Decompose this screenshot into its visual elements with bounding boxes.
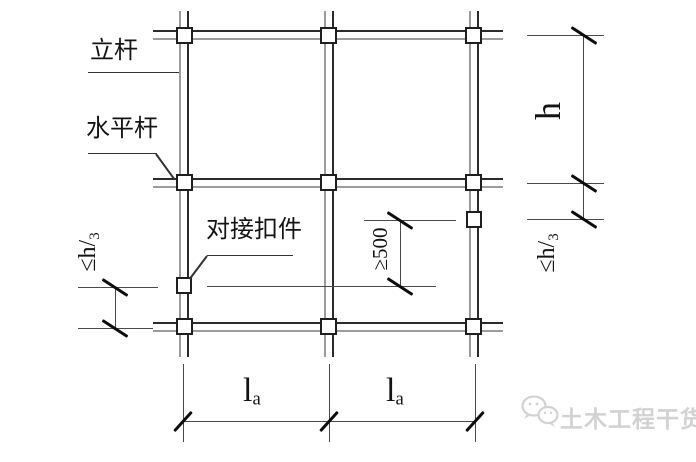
- ge500-value: ≥500: [370, 227, 391, 270]
- dim-text-h: h: [526, 89, 570, 133]
- butt-coupler-right: [466, 211, 482, 228]
- dim-text-ge500: ≥500: [369, 219, 391, 279]
- scaffold-butt-joint-diagram: h ≤h/3 ≤h/3 ≥500 la la 立杆 水平杆 对接扣件: [0, 0, 696, 462]
- leader-line-butt-coupler: [207, 255, 293, 256]
- extension-line: [475, 364, 476, 442]
- extension-line: [527, 183, 604, 184]
- dimension-line-ge500: [400, 220, 401, 286]
- dimension-line-leq-h3-left: [115, 287, 116, 328]
- dimension-line-h: [583, 35, 584, 219]
- dim-text-leq-h3-left: ≤h/3: [77, 220, 103, 284]
- extension-line: [183, 364, 184, 442]
- leader-elbow-butt-coupler: [189, 255, 208, 279]
- label-butt-coupler: 对接扣件: [206, 218, 302, 242]
- dim-text-la-1: la: [243, 374, 261, 409]
- joint-square: [176, 27, 193, 44]
- leader-elbow-horizontal-bar: [155, 153, 175, 179]
- label-vertical-pole: 立杆: [90, 39, 138, 63]
- joint-square: [176, 318, 193, 335]
- watermark-text: 土木工程干货集: [560, 400, 696, 434]
- leq-main: ≤h/3: [535, 233, 562, 272]
- joint-square: [176, 174, 193, 191]
- label-horizontal-bar: 水平杆: [86, 117, 158, 141]
- wechat-bubbles-icon: [519, 394, 561, 430]
- leader-line-vertical-pole: [88, 72, 179, 73]
- joint-square: [465, 27, 482, 44]
- dim-text-leq-h3-right: ≤h/3: [536, 221, 562, 285]
- joint-square: [465, 174, 482, 191]
- joint-square: [320, 27, 337, 44]
- dim-text-h-value: h: [530, 102, 566, 120]
- joint-square: [320, 174, 337, 191]
- extension-line: [527, 219, 604, 220]
- joint-square: [465, 318, 482, 335]
- joint-square: [320, 318, 337, 335]
- extension-line: [329, 364, 330, 442]
- leader-line-horizontal-bar: [88, 153, 157, 154]
- dim-text-la-2: la: [386, 374, 404, 409]
- extension-line: [527, 35, 604, 36]
- leq-main: ≤h/3: [76, 232, 103, 271]
